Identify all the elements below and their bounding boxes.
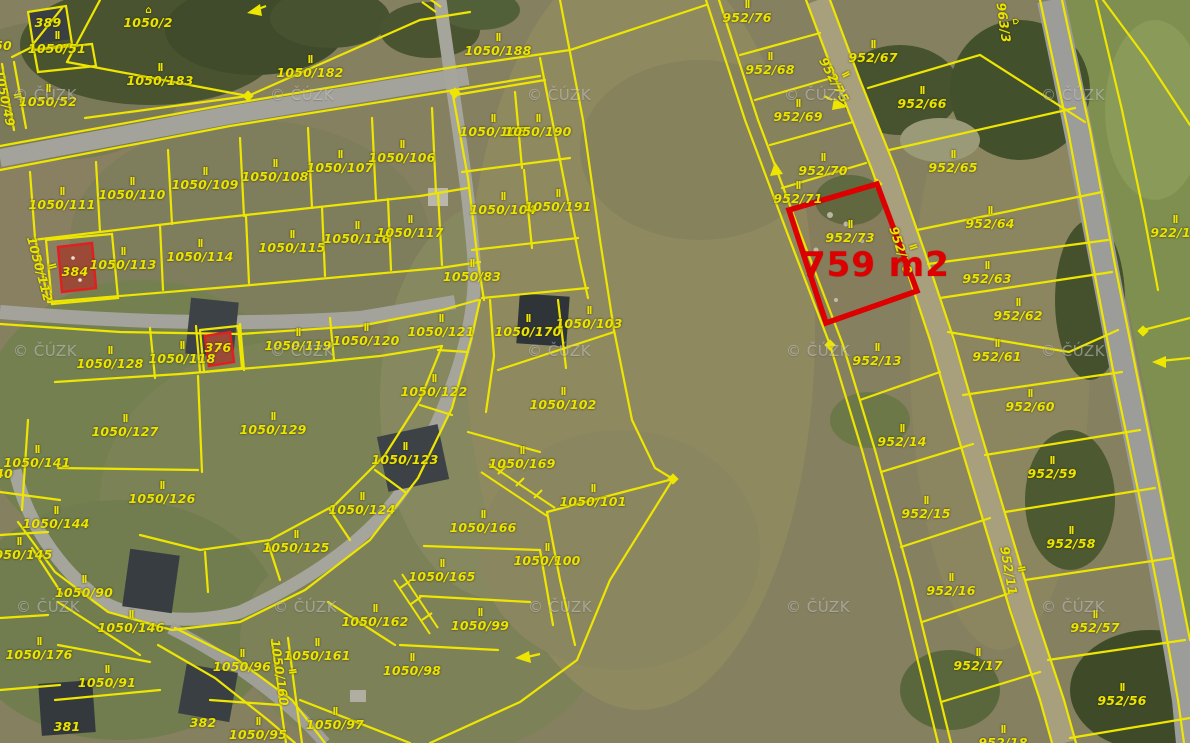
parcel-type-icon: II <box>978 726 1027 736</box>
parcel-type-icon: II <box>126 64 193 74</box>
parcel-type-icon: II <box>993 299 1042 309</box>
parcel-label: II922/11 <box>1150 217 1190 240</box>
parcel-label: 384 <box>62 266 89 279</box>
parcel-label: II1050/109 <box>171 169 238 192</box>
parcel-label: 389 <box>35 17 62 30</box>
parcel-label: II952/63 <box>962 263 1011 286</box>
parcel-number: 1050/100 <box>513 553 580 568</box>
parcel-label: II1050/183 <box>126 65 193 88</box>
parcel-label: II1050/190 <box>504 116 571 139</box>
parcel-label: II1050/110 <box>98 179 165 202</box>
parcel-label: II1050/90 <box>55 577 113 600</box>
parcel-number: 381 <box>54 719 81 734</box>
parcel-label: II1050/123 <box>371 444 438 467</box>
parcel-label: II952/66 <box>897 88 946 111</box>
parcel-type-icon: II <box>276 56 343 66</box>
parcel-number: 952/64 <box>965 216 1014 231</box>
parcel-number: 1050/169 <box>488 456 555 471</box>
parcel-label: II1050/106 <box>368 142 435 165</box>
parcel-type-icon: II <box>171 168 238 178</box>
parcel-number: 1050/123 <box>371 452 438 467</box>
parcel-number: 1050/128 <box>76 356 143 371</box>
source-watermark: © ČÚZK <box>786 598 850 616</box>
parcel-label: 50 <box>0 40 12 53</box>
parcel-type-icon: II <box>97 611 164 621</box>
parcel-type-icon: II <box>28 32 86 42</box>
source-watermark: © ČÚZK <box>784 86 848 104</box>
source-watermark: © ČÚZK <box>1041 86 1105 104</box>
parcel-type-icon: II <box>513 544 580 554</box>
parcel-type-icon: II <box>128 482 195 492</box>
parcel-label: II1050/129 <box>239 414 306 437</box>
source-watermark: © ČÚZK <box>1041 598 1105 616</box>
parcel-number: 1050/98 <box>383 663 441 678</box>
parcel-type-icon: II <box>5 638 72 648</box>
parcel-type-icon: II <box>559 485 626 495</box>
parcel-label: II1050/170 <box>494 316 561 339</box>
parcel-label: II952/59 <box>1027 458 1076 481</box>
parcel-type-icon: II <box>848 41 897 51</box>
parcel-type-icon: II <box>1005 390 1054 400</box>
parcel-label: II1050/145 <box>0 539 53 562</box>
parcel-number: 1050/182 <box>276 65 343 80</box>
parcel-type-icon: II <box>965 207 1014 217</box>
parcel-type-icon: II <box>524 190 591 200</box>
parcel-number: 922/11 <box>1150 225 1190 240</box>
parcel-label: II1050/113 <box>89 249 156 272</box>
parcel-number: 1050/96 <box>213 659 271 674</box>
source-watermark: © ČÚZK <box>270 86 334 104</box>
parcel-number: 952/58 <box>1046 536 1095 551</box>
parcel-label: II1050/121 <box>407 316 474 339</box>
parcel-type-icon: II <box>928 151 977 161</box>
parcel-label: II1050/83 <box>443 261 501 284</box>
source-watermark: © ČÚZK <box>270 342 334 360</box>
parcel-label: II952/16 <box>926 575 975 598</box>
parcel-number: 1050/113 <box>89 257 156 272</box>
parcel-type-icon: II <box>28 188 95 198</box>
parcel-type-icon: II <box>449 511 516 521</box>
parcel-type-icon: II <box>229 718 287 728</box>
parcel-label: ⌂963/3 <box>994 0 1022 43</box>
parcel-type-icon: II <box>722 1 771 11</box>
source-watermark: © ČÚZK <box>528 598 592 616</box>
parcel-type-icon: II <box>529 388 596 398</box>
parcel-label: 40 <box>0 468 13 481</box>
parcel-label: II1050/99 <box>451 610 509 633</box>
parcel-label: II1050/114 <box>166 241 233 264</box>
parcel-number: 376 <box>205 340 232 355</box>
parcel-type-icon: II <box>55 576 113 586</box>
parcel-label: II1050/169 <box>488 448 555 471</box>
parcel-number: 952/62 <box>993 308 1042 323</box>
source-watermark: © ČÚZK <box>273 598 337 616</box>
parcel-label: II1050/125 <box>262 532 329 555</box>
parcel-number: 952/67 <box>848 50 897 65</box>
source-watermark: © ČÚZK <box>16 598 80 616</box>
parcel-number: 1050/102 <box>529 397 596 412</box>
parcel-type-icon: II <box>972 340 1021 350</box>
parcel-number: 1050/162 <box>341 614 408 629</box>
parcel-number: 1050/91 <box>78 675 136 690</box>
parcel-number: 952/71 <box>773 191 822 206</box>
parcel-label: II952/56 <box>1097 685 1146 708</box>
parcel-number: 1050/95 <box>229 727 287 742</box>
parcel-label: II952/58 <box>1046 528 1095 551</box>
parcel-label: II1050/120 <box>332 325 399 348</box>
parcel-type-icon: II <box>376 216 443 226</box>
parcel-number: 1050/115 <box>258 240 325 255</box>
parcel-type-icon: II <box>555 307 622 317</box>
parcel-label: II1050/162 <box>341 606 408 629</box>
parcel-label: II952/69 <box>773 101 822 124</box>
parcel-label: II1050/108 <box>241 161 308 184</box>
parcel-label: II1050/176 <box>5 639 72 662</box>
parcel-number: 952/15 <box>901 506 950 521</box>
parcel-type-icon: II <box>76 347 143 357</box>
parcel-type-icon: II <box>1097 684 1146 694</box>
map-graphics <box>0 0 1190 743</box>
parcel-number: 952/76 <box>722 10 771 25</box>
cadastral-map[interactable]: 389II1050/5150II1050/49II1050/52⌂1050/2I… <box>0 0 1190 743</box>
parcel-type-icon: II <box>258 231 325 241</box>
parcel-number: 952/59 <box>1027 466 1076 481</box>
parcel-label: II1050/141 <box>3 447 70 470</box>
parcel-label: 381 <box>54 721 81 734</box>
source-watermark: © ČÚZK <box>786 342 850 360</box>
parcel-type-icon: II <box>332 324 399 334</box>
parcel-number: 952/65 <box>928 160 977 175</box>
parcel-type-icon: II <box>408 560 475 570</box>
parcel-type-icon: II <box>3 446 70 456</box>
parcel-type-icon: II <box>504 115 571 125</box>
parcel-type-icon: II <box>852 344 901 354</box>
parcel-number: 952/66 <box>897 96 946 111</box>
parcel-label: II952/73 <box>825 222 874 245</box>
parcel-label: II952/13 <box>852 345 901 368</box>
parcel-number: 952/14 <box>877 434 926 449</box>
parcel-type-icon: II <box>98 178 165 188</box>
parcel-number: 1050/106 <box>368 150 435 165</box>
parcel-label: 376 <box>205 342 232 355</box>
parcel-number: 952/73 <box>825 230 874 245</box>
parcel-label: II952/67 <box>848 42 897 65</box>
parcel-number: 1050/83 <box>443 269 501 284</box>
parcel-type-icon: II <box>283 639 350 649</box>
parcel-number: 1050/114 <box>166 249 233 264</box>
parcel-type-icon: II <box>451 609 509 619</box>
parcel-label: II952/17 <box>953 650 1002 673</box>
parcel-number: 1050/2 <box>123 15 172 30</box>
parcel-number: 384 <box>62 264 89 279</box>
parcel-label: ⌂1050/2 <box>123 7 172 30</box>
parcel-number: 1050/110 <box>98 187 165 202</box>
parcel-type-icon: II <box>488 447 555 457</box>
parcel-number: 952/63 <box>962 271 1011 286</box>
source-watermark: © ČÚZK <box>527 342 591 360</box>
parcel-number: 1050/166 <box>449 520 516 535</box>
parcel-number: 1050/120 <box>332 333 399 348</box>
parcel-number: 1050/170 <box>494 324 561 339</box>
parcel-number: 1050/126 <box>128 491 195 506</box>
parcel-label: II1050/124 <box>328 494 395 517</box>
building-icon: ⌂ <box>123 6 172 16</box>
parcel-type-icon: II <box>264 329 331 339</box>
parcel-label: II1050/103 <box>555 308 622 331</box>
parcel-type-icon: II <box>407 315 474 325</box>
parcel-label: II1050/102 <box>529 389 596 412</box>
parcel-type-icon: II <box>306 708 364 718</box>
parcel-number: 1050/125 <box>262 540 329 555</box>
parcel-label: II1050/115 <box>258 232 325 255</box>
parcel-label: II1050/191 <box>524 191 591 214</box>
parcel-type-icon: II <box>341 605 408 615</box>
parcel-label: II1050/107 <box>306 152 373 175</box>
parcel-number: 1050/101 <box>559 494 626 509</box>
parcel-label: II1050/98 <box>383 655 441 678</box>
parcel-label: II1050/182 <box>276 57 343 80</box>
parcel-number: 952/61 <box>972 349 1021 364</box>
parcel-number: 1050/107 <box>306 160 373 175</box>
parcel-number: 952/68 <box>745 62 794 77</box>
parcel-number: 40 <box>0 466 13 481</box>
parcel-number: 952/57 <box>1070 620 1119 635</box>
parcel-type-icon: II <box>383 654 441 664</box>
parcel-type-icon: II <box>825 221 874 231</box>
parcel-number: 1050/109 <box>171 177 238 192</box>
parcel-label: II1050/146 <box>97 612 164 635</box>
parcel-number: 1050/145 <box>0 547 53 562</box>
source-watermark: © ČÚZK <box>13 342 77 360</box>
parcel-type-icon: II <box>0 538 53 548</box>
parcel-label: II1050/126 <box>128 483 195 506</box>
parcel-label: II1050/97 <box>306 709 364 732</box>
parcel-number: 1050/99 <box>451 618 509 633</box>
parcel-type-icon: II <box>926 574 975 584</box>
parcel-number: 1050/146 <box>97 620 164 635</box>
source-watermark: © ČÚZK <box>527 86 591 104</box>
parcel-number: 952/70 <box>798 163 847 178</box>
parcel-type-icon: II <box>371 443 438 453</box>
parcel-label: II1050/165 <box>408 561 475 584</box>
parcel-label: II952/62 <box>993 300 1042 323</box>
parcel-label: II952/68 <box>745 54 794 77</box>
parcel-type-icon: II <box>773 182 822 192</box>
parcel-type-icon: II <box>328 493 395 503</box>
parcel-number: 952/16 <box>926 583 975 598</box>
parcel-label: II1050/96 <box>213 651 271 674</box>
source-watermark: © ČÚZK <box>13 86 77 104</box>
parcel-number: 1050/121 <box>407 324 474 339</box>
parcel-type-icon: II <box>897 87 946 97</box>
parcel-number: 1050/124 <box>328 502 395 517</box>
parcel-number: 1050/188 <box>464 43 531 58</box>
parcel-type-icon: II <box>494 315 561 325</box>
parcel-type-icon: II <box>239 413 306 423</box>
parcel-label: II952/60 <box>1005 391 1054 414</box>
parcel-number: 1050/103 <box>555 316 622 331</box>
parcel-label: II952/15 <box>901 498 950 521</box>
parcel-label: II1050/122 <box>400 376 467 399</box>
parcel-number: 1050/122 <box>400 384 467 399</box>
parcel-label: II952/70 <box>798 155 847 178</box>
parcel-number: 952/17 <box>953 658 1002 673</box>
parcel-number: 1050/191 <box>524 199 591 214</box>
parcel-label: II1050/188 <box>464 35 531 58</box>
parcel-label: II1050/127 <box>91 416 158 439</box>
parcel-number: 50 <box>0 38 12 53</box>
parcel-label: 382 <box>190 717 217 730</box>
parcel-label: II952/14 <box>877 426 926 449</box>
parcel-type-icon: II <box>464 34 531 44</box>
parcel-type-icon: II <box>306 151 373 161</box>
parcel-type-icon: II <box>368 141 435 151</box>
parcel-type-icon: II <box>1046 527 1095 537</box>
parcel-number: 1050/190 <box>504 124 571 139</box>
parcel-type-icon: II <box>1150 216 1190 226</box>
parcel-type-icon: II <box>89 248 156 258</box>
parcel-number: 1050/51 <box>28 41 86 56</box>
parcel-type-icon: II <box>745 53 794 63</box>
parcel-number: 1050/108 <box>241 169 308 184</box>
parcel-type-icon: II <box>241 160 308 170</box>
parcel-type-icon: II <box>962 262 1011 272</box>
parcel-number: 1050/97 <box>306 717 364 732</box>
highlight-area-label: 759 m2 <box>802 245 950 285</box>
parcel-label: II1050/101 <box>559 486 626 509</box>
parcel-number: 1050/141 <box>3 455 70 470</box>
parcel-type-icon: II <box>213 650 271 660</box>
parcel-label: II952/71 <box>773 183 822 206</box>
parcel-type-icon: II <box>901 497 950 507</box>
source-watermark: © ČÚZK <box>1041 342 1105 360</box>
parcel-label: II1050/91 <box>78 667 136 690</box>
parcel-number: 952/56 <box>1097 693 1146 708</box>
parcel-number: 382 <box>190 715 217 730</box>
parcel-number: 1050/165 <box>408 569 475 584</box>
parcel-number: 389 <box>35 15 62 30</box>
parcel-type-icon: II <box>166 240 233 250</box>
parcel-label: II952/64 <box>965 208 1014 231</box>
parcel-type-icon: II <box>877 425 926 435</box>
parcel-label: II1050/100 <box>513 545 580 568</box>
parcel-type-icon: II <box>91 415 158 425</box>
parcel-number: 952/60 <box>1005 399 1054 414</box>
parcel-number: 1050/127 <box>91 424 158 439</box>
parcel-label: II952/65 <box>928 152 977 175</box>
parcel-number: 1050/144 <box>22 516 89 531</box>
parcel-label: II1050/95 <box>229 719 287 742</box>
parcel-number: 1050/176 <box>5 647 72 662</box>
parcel-type-icon: II <box>1027 457 1076 467</box>
parcel-type-icon: II <box>78 666 136 676</box>
parcel-label: II1050/166 <box>449 512 516 535</box>
parcel-number: 952/69 <box>773 109 822 124</box>
parcel-type-icon: II <box>798 154 847 164</box>
parcel-label: II952/76 <box>722 2 771 25</box>
parcel-label: II1050/111 <box>28 189 95 212</box>
parcel-label: II1050/117 <box>376 217 443 240</box>
parcel-number: 1050/117 <box>376 225 443 240</box>
parcel-number: 952/13 <box>852 353 901 368</box>
parcel-number: 1050/111 <box>28 197 95 212</box>
parcel-label: II952/61 <box>972 341 1021 364</box>
parcel-type-icon: II <box>400 375 467 385</box>
parcel-type-icon: II <box>953 649 1002 659</box>
parcel-number: 1050/129 <box>239 422 306 437</box>
parcel-type-icon: II <box>22 507 89 517</box>
parcel-label: II952/18 <box>978 727 1027 743</box>
parcel-label: II1050/128 <box>76 348 143 371</box>
parcel-type-icon: II <box>262 531 329 541</box>
parcel-label: II1050/144 <box>22 508 89 531</box>
parcel-type-icon: II <box>443 260 501 270</box>
parcel-number: 1050/183 <box>126 73 193 88</box>
parcel-label: II1050/51 <box>28 33 86 56</box>
